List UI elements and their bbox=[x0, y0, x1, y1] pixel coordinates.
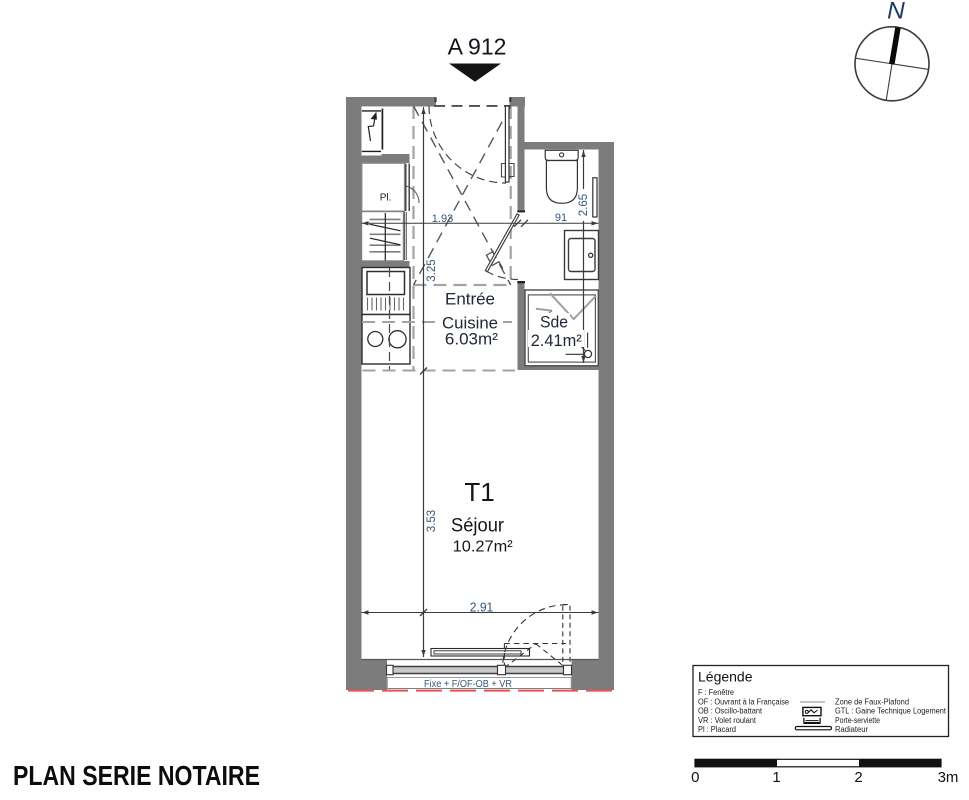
svg-text:Porte-serviette: Porte-serviette bbox=[835, 716, 880, 725]
svg-text:10.27m²: 10.27m² bbox=[453, 539, 514, 556]
svg-text:PLAN SERIE NOTAIRE: PLAN SERIE NOTAIRE bbox=[13, 760, 260, 791]
svg-text:Zone de Faux-Plafond: Zone de Faux-Plafond bbox=[835, 697, 909, 706]
svg-text:Légende: Légende bbox=[698, 669, 753, 685]
svg-text:Séjour: Séjour bbox=[451, 516, 505, 537]
svg-text:T1: T1 bbox=[464, 477, 494, 507]
svg-text:N: N bbox=[887, 0, 905, 25]
svg-text:3.53: 3.53 bbox=[426, 510, 438, 532]
svg-text:OF : Ouvrant à la Française: OF : Ouvrant à la Française bbox=[698, 697, 790, 706]
svg-text:2.91: 2.91 bbox=[470, 599, 494, 614]
svg-text:2: 2 bbox=[854, 769, 862, 786]
svg-text:VR : Volet roulant: VR : Volet roulant bbox=[698, 716, 757, 725]
svg-text:F : Fenêtre: F : Fenêtre bbox=[698, 688, 735, 697]
svg-text:Pl.: Pl. bbox=[380, 193, 392, 204]
svg-text:1.93: 1.93 bbox=[432, 213, 453, 225]
svg-text:2.41m²: 2.41m² bbox=[531, 331, 582, 350]
svg-text:3m: 3m bbox=[938, 769, 959, 786]
svg-text:A 912: A 912 bbox=[448, 34, 507, 60]
svg-text:2.65: 2.65 bbox=[578, 194, 590, 216]
svg-text:3.25: 3.25 bbox=[426, 259, 438, 281]
svg-text:0: 0 bbox=[691, 769, 699, 786]
svg-text:Radiateur: Radiateur bbox=[835, 725, 868, 734]
svg-text:OB : Oscillo-battant: OB : Oscillo-battant bbox=[698, 707, 763, 716]
svg-text:91: 91 bbox=[555, 212, 567, 224]
svg-text:Entrée: Entrée bbox=[445, 290, 495, 309]
svg-text:Fixe + F/OF-OB + VR: Fixe + F/OF-OB + VR bbox=[424, 679, 512, 690]
svg-text:Sde: Sde bbox=[540, 312, 568, 331]
svg-text:6.03m²: 6.03m² bbox=[445, 329, 498, 348]
svg-text:1: 1 bbox=[772, 769, 780, 786]
svg-text:GTL : Gaine Technique Logement: GTL : Gaine Technique Logement bbox=[835, 707, 947, 716]
svg-text:Pl : Placard: Pl : Placard bbox=[698, 725, 736, 734]
